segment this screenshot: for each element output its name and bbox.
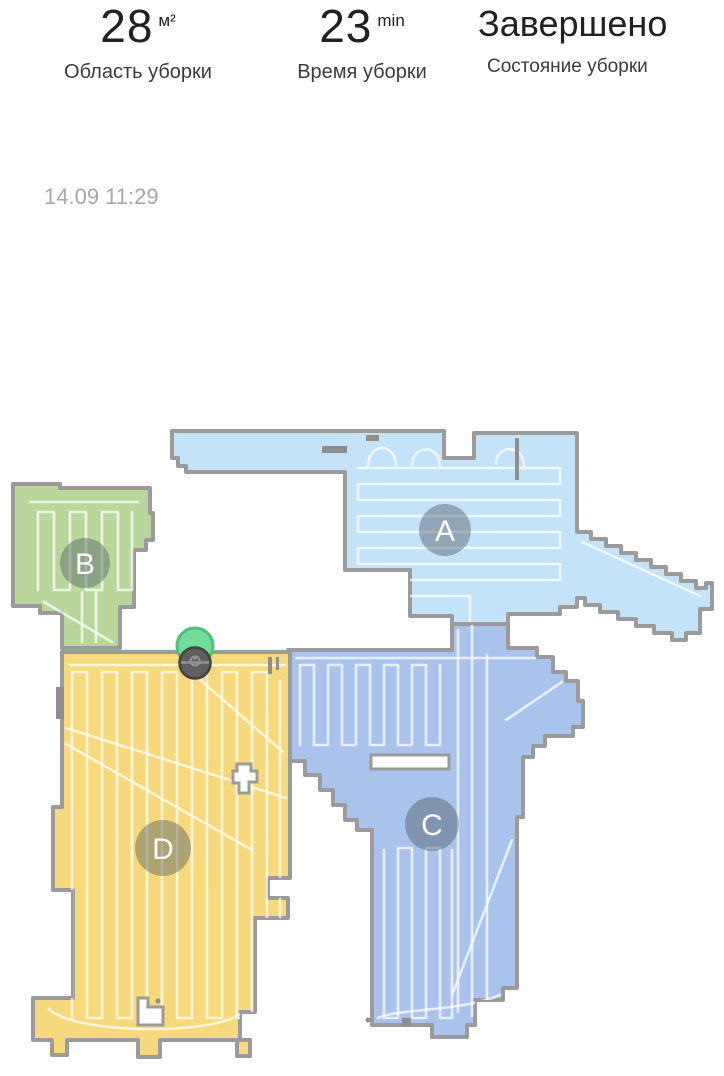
unit-minutes: min [377,11,404,31]
map-obstacle-wall [276,657,279,670]
map-obstacle-dot [366,1018,371,1023]
stat-clean-status-label: Состояние уборки [487,56,684,78]
map-obstacle-wall [56,687,64,719]
stat-clean-status: Завершено Состояние уборки [478,0,684,78]
map-obstacle-dot [156,999,161,1004]
map-obstacle-wall [268,657,272,674]
room-b-label[interactable]: B [60,538,110,588]
room-c-label[interactable]: C [405,797,459,851]
stat-clean-area: 28м² Область уборки [28,0,248,84]
stat-clean-time-label: Время уборки [262,61,462,84]
stat-clean-status-value: Завершено [478,0,684,47]
svg-text:A: A [435,515,455,548]
map-obstacle-wall [515,438,519,480]
map-obstacle-slot [371,755,449,769]
stat-clean-area-value: 28м² [28,0,248,52]
room-d-label[interactable]: D [135,820,191,876]
map-obstacle-wall [366,435,379,441]
map-obstacle-block [402,1018,411,1026]
svg-text:C: C [421,809,443,842]
robot-icon [180,648,211,679]
cleaning-timestamp: 14.09 11:29 [44,184,159,210]
unit-square-meters: м² [158,11,175,31]
svg-text:B: B [75,548,95,581]
map-obstacle-wall [322,446,347,453]
stat-clean-time-value: 23min [262,0,462,52]
cleaning-map: A B C D [0,420,724,1076]
svg-text:D: D [152,833,174,866]
stat-clean-time: 23min Время уборки [262,0,462,84]
room-a-label[interactable]: A [419,504,471,556]
stat-clean-area-label: Область уборки [28,61,248,84]
